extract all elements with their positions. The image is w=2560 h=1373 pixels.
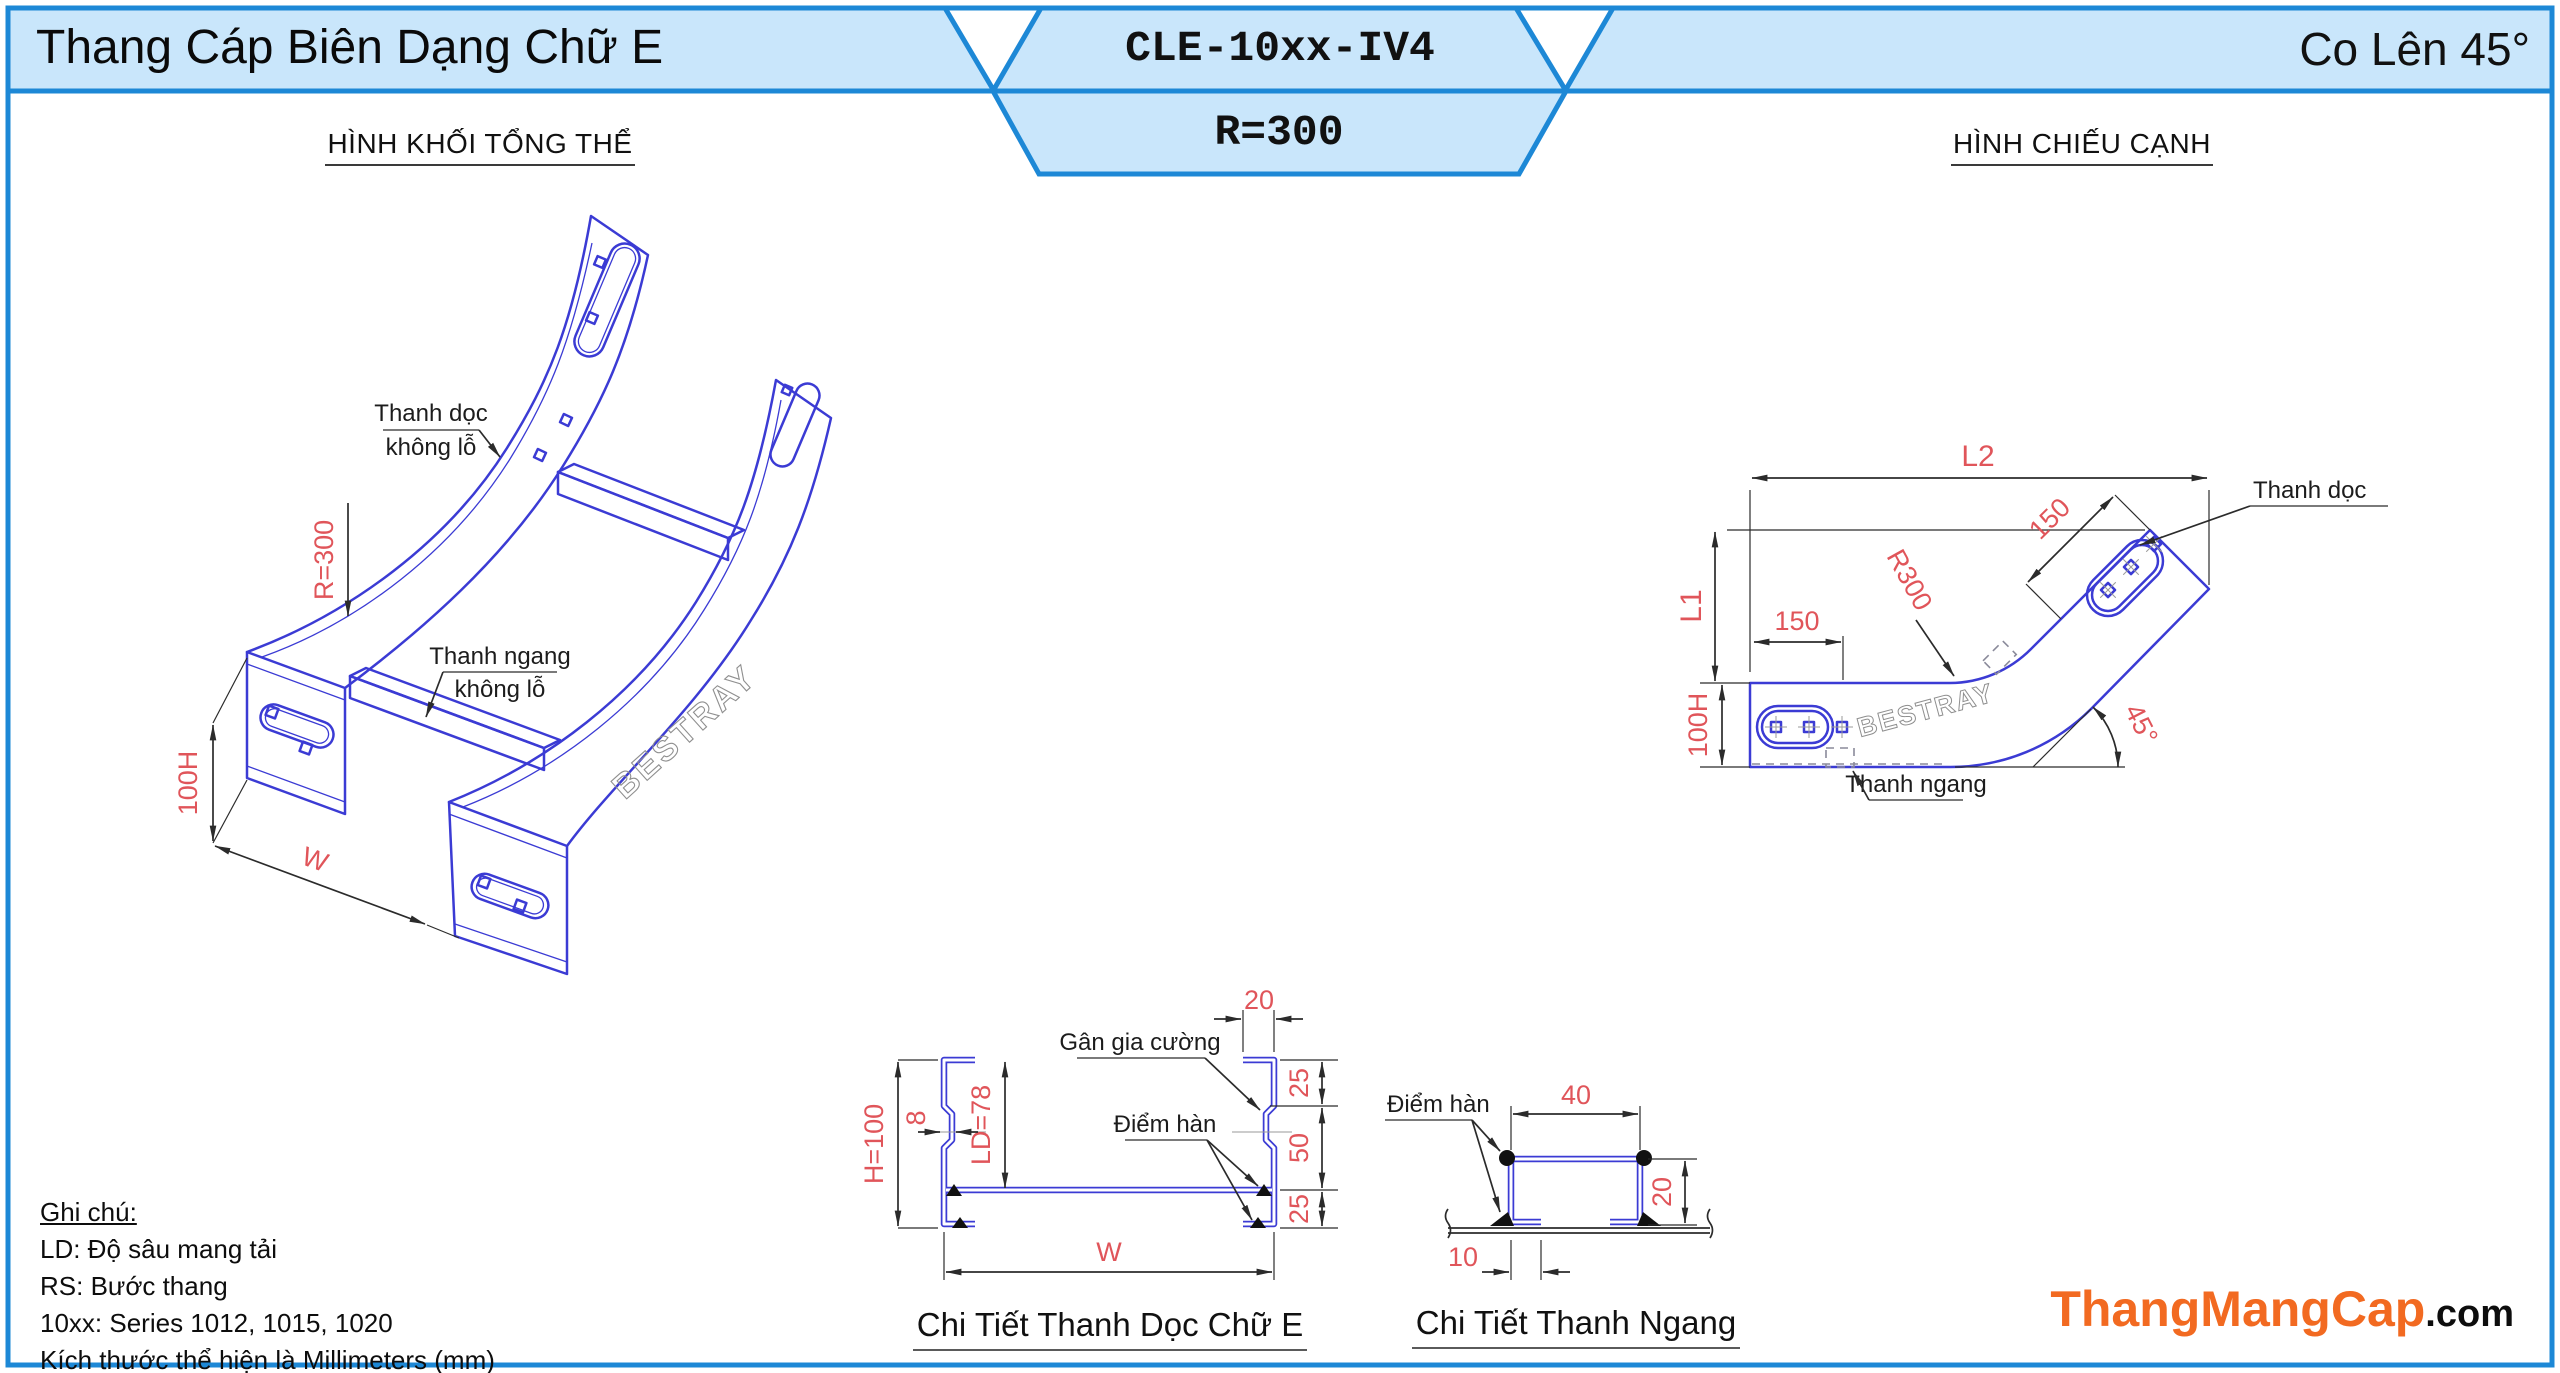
- svg-text:không lỗ: không lỗ: [455, 676, 546, 703]
- page-border: [8, 8, 2552, 1365]
- note-line: LD: Độ sâu mang tải: [40, 1231, 495, 1268]
- svg-text:Gân gia cường: Gân gia cường: [1059, 1029, 1220, 1056]
- side-section-heading: HÌNH CHIẾU CẠNH: [1882, 128, 2282, 166]
- svg-text:L1: L1: [1675, 589, 1708, 622]
- svg-text:LD=78: LD=78: [966, 1085, 996, 1165]
- svg-text:25: 25: [1284, 1068, 1314, 1098]
- rung-detail-title: Chi Tiết Thanh Ngang: [1356, 1304, 1796, 1349]
- svg-text:R=300: R=300: [309, 520, 339, 600]
- note-line: Kích thước thể hiện là Millimeters (mm): [40, 1342, 495, 1373]
- notes-heading: Ghi chú:: [40, 1194, 495, 1231]
- iso-section-heading: HÌNH KHỐI TỔNG THỂ: [280, 128, 680, 166]
- svg-text:8: 8: [901, 1110, 931, 1125]
- side-section-heading-text: HÌNH CHIẾU CẠNH: [1951, 128, 2213, 166]
- note-line: RS: Bước thang: [40, 1268, 495, 1305]
- svg-text:40: 40: [1561, 1080, 1591, 1110]
- brand-name: ThangMangCap: [2050, 1281, 2425, 1337]
- svg-text:150: 150: [1774, 606, 1819, 636]
- svg-text:10: 10: [1448, 1242, 1478, 1272]
- iso-section-heading-text: HÌNH KHỐI TỔNG THỂ: [325, 128, 634, 166]
- svg-text:100H: 100H: [173, 751, 203, 816]
- svg-text:20: 20: [1244, 985, 1274, 1015]
- radius-code: R=300: [1040, 108, 1518, 157]
- brand-tld: .com: [2425, 1293, 2514, 1335]
- svg-text:Điểm hàn: Điểm hàn: [1114, 1111, 1217, 1138]
- svg-text:25: 25: [1284, 1194, 1314, 1224]
- svg-text:Thanh dọc: Thanh dọc: [2253, 477, 2366, 504]
- sheet-title: Thang Cáp Biên Dạng Chữ E: [36, 20, 663, 75]
- rung-detail-title-text: Chi Tiết Thanh Ngang: [1412, 1304, 1740, 1349]
- drawing-sheet: BESTRAY R=300 100H W Thanh dọc: [0, 0, 2560, 1373]
- svg-text:Thanh ngang: Thanh ngang: [429, 643, 570, 670]
- svg-text:50: 50: [1284, 1133, 1314, 1163]
- bend-type-title: Co Lên 45°: [2299, 22, 2530, 76]
- e-detail-title: Chi Tiết Thanh Dọc Chữ E: [890, 1306, 1330, 1351]
- svg-text:H=100: H=100: [859, 1104, 889, 1184]
- brand-logo: ThangMangCap.com: [2050, 1280, 2514, 1338]
- svg-text:100H: 100H: [1683, 693, 1713, 758]
- side-rung-label: Thanh ngang: [1845, 771, 1986, 800]
- svg-text:W: W: [1096, 1237, 1122, 1267]
- svg-text:Điểm hàn: Điểm hàn: [1387, 1091, 1490, 1118]
- notes-block: Ghi chú: LD: Độ sâu mang tải RS: Bước th…: [40, 1194, 495, 1373]
- svg-text:không lỗ: không lỗ: [386, 434, 477, 461]
- drawing-canvas: BESTRAY R=300 100H W Thanh dọc: [0, 0, 2560, 1373]
- svg-text:L2: L2: [1961, 440, 1994, 473]
- e-detail-title-text: Chi Tiết Thanh Dọc Chữ E: [913, 1306, 1308, 1351]
- note-line: 10xx: Series 1012, 1015, 1020: [40, 1305, 495, 1342]
- svg-text:20: 20: [1647, 1177, 1677, 1207]
- svg-text:Thanh dọc: Thanh dọc: [374, 400, 487, 427]
- model-code: CLE-10xx-IV4: [995, 24, 1565, 73]
